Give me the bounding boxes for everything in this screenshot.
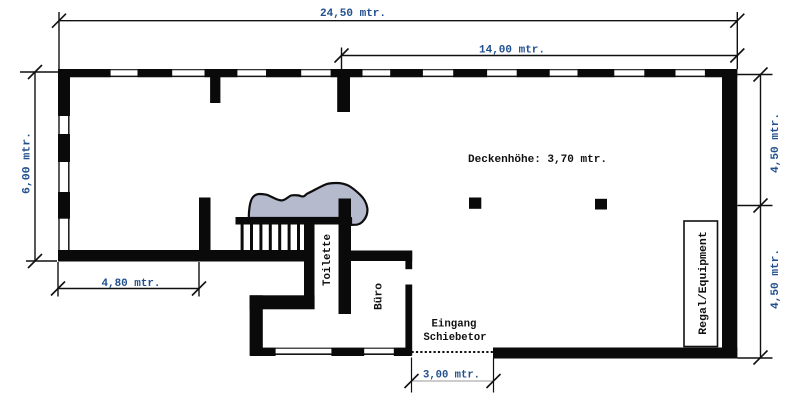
svg-text:Büro: Büro <box>374 283 386 310</box>
svg-text:Eingang: Eingang <box>432 319 477 331</box>
svg-text:Toilette: Toilette <box>322 234 334 286</box>
svg-text:4,50 mtr.: 4,50 mtr. <box>770 113 782 173</box>
svg-text:4,50 mtr.: 4,50 mtr. <box>770 249 782 309</box>
svg-text:4,80 mtr.: 4,80 mtr. <box>102 278 161 290</box>
svg-text:3,00 mtr.: 3,00 mtr. <box>423 370 480 382</box>
svg-text:24,50 mtr.: 24,50 mtr. <box>320 8 386 20</box>
svg-text:Regal/Equipment: Regal/Equipment <box>698 231 710 335</box>
svg-text:Deckenhöhe: 3,70 mtr.: Deckenhöhe: 3,70 mtr. <box>468 154 607 166</box>
svg-text:14,00 mtr.: 14,00 mtr. <box>479 44 545 56</box>
svg-text:6,00 mtr.: 6,00 mtr. <box>22 132 34 194</box>
svg-text:Schiebetor: Schiebetor <box>424 332 487 344</box>
